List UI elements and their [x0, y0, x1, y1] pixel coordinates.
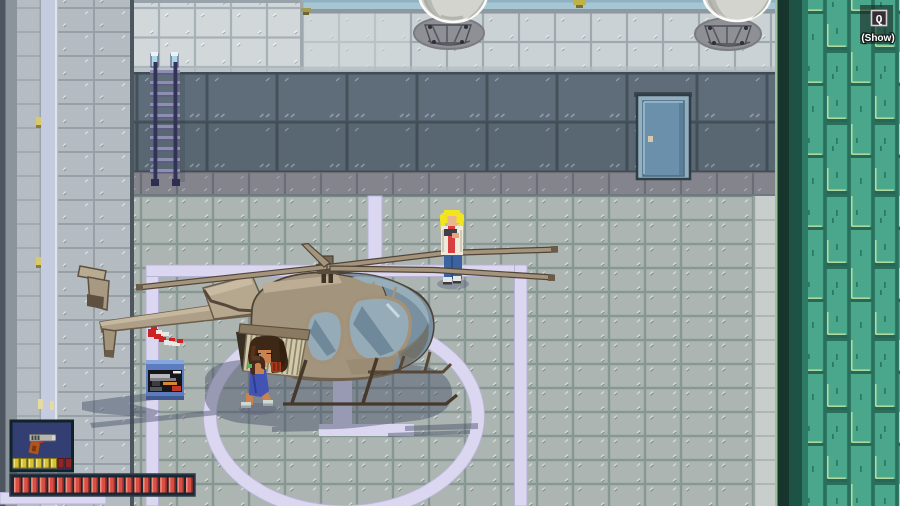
svg-text:Q: Q [876, 15, 883, 27]
svg-text:(Show): (Show) [861, 33, 894, 44]
